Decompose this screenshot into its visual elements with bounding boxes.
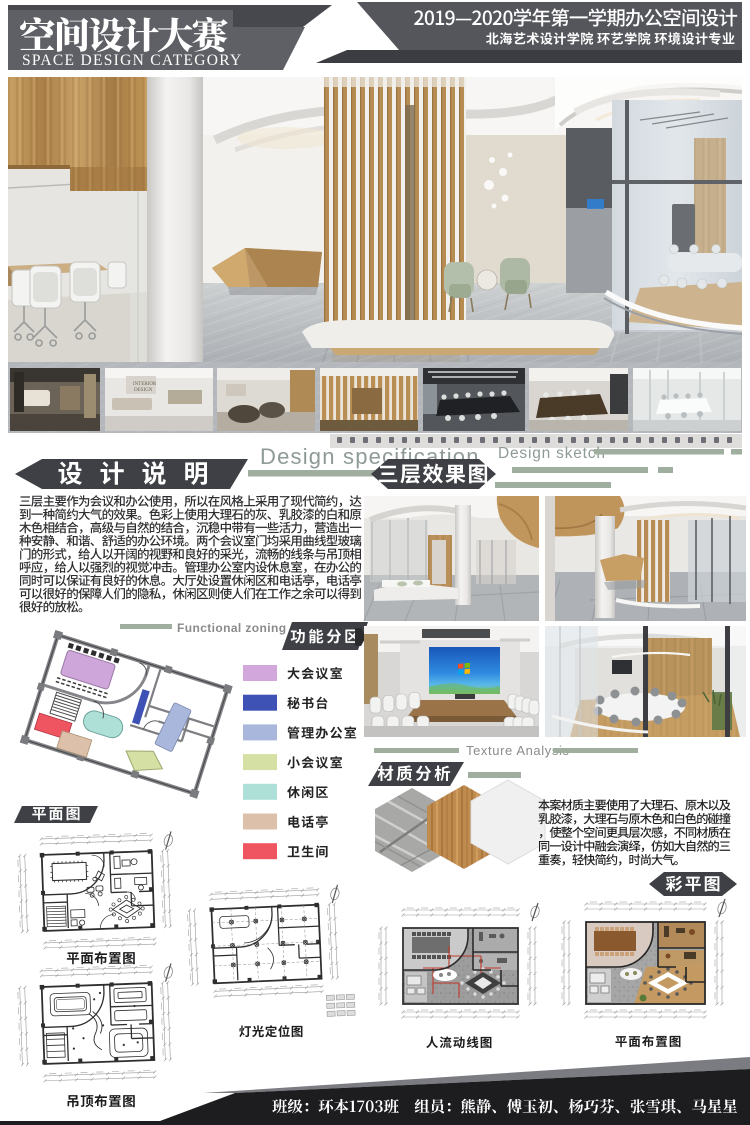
svg-text:Design sketch: Design sketch (498, 445, 606, 462)
svg-text:Functional zoning: Functional zoning (177, 621, 286, 635)
svg-text:DESIGN: DESIGN (134, 388, 153, 393)
svg-text:INTERIOR: INTERIOR (133, 382, 157, 387)
svg-text:SPACE DESIGN CATEGORY: SPACE DESIGN CATEGORY (22, 52, 243, 69)
